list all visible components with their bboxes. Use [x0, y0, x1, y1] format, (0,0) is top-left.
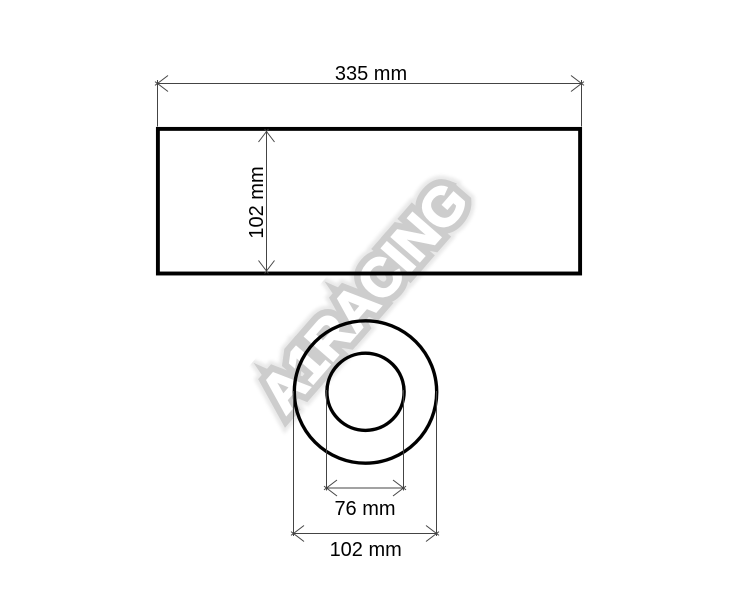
svg-text:335 mm: 335 mm: [335, 63, 407, 85]
svg-text:A1RACING: A1RACING: [249, 171, 479, 423]
svg-text:76 mm: 76 mm: [334, 498, 395, 520]
svg-text:102 mm: 102 mm: [330, 539, 402, 561]
svg-text:102 mm: 102 mm: [246, 166, 268, 238]
